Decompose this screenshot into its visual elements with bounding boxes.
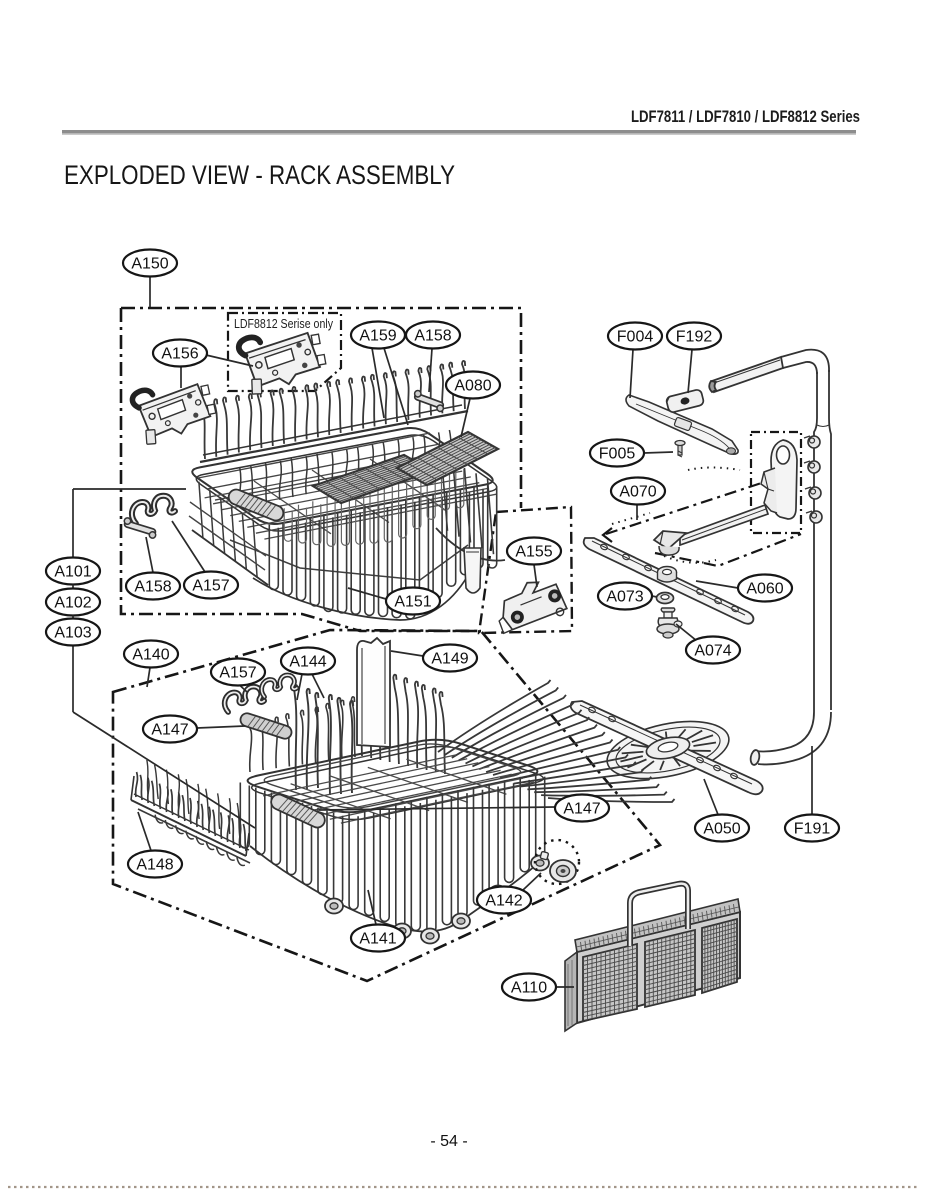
svg-text:A110: A110 <box>511 980 547 997</box>
svg-text:LDF7811 / LDF7810 / LDF8812 Se: LDF7811 / LDF7810 / LDF8812 Series <box>631 108 860 126</box>
svg-text:A151: A151 <box>394 594 431 611</box>
svg-text:A074: A074 <box>694 643 731 660</box>
svg-text:A158: A158 <box>414 328 451 345</box>
svg-text:A073: A073 <box>606 589 643 606</box>
svg-text:F191: F191 <box>794 821 831 838</box>
svg-text:- 54 -: - 54 - <box>430 1133 467 1150</box>
svg-text:A070: A070 <box>619 484 656 501</box>
svg-text:A150: A150 <box>131 256 168 273</box>
svg-text:A144: A144 <box>289 654 326 671</box>
svg-text:A102: A102 <box>54 595 91 612</box>
svg-text:A141: A141 <box>359 931 396 948</box>
svg-text:A155: A155 <box>515 544 552 561</box>
svg-text:A157: A157 <box>192 578 229 595</box>
svg-text:LDF8812 Serise only: LDF8812 Serise only <box>234 316 333 331</box>
svg-text:A157: A157 <box>219 665 256 682</box>
svg-text:A158: A158 <box>134 579 171 596</box>
svg-text:F005: F005 <box>599 446 636 463</box>
svg-text:A142: A142 <box>485 893 522 910</box>
svg-text:A159: A159 <box>359 328 396 345</box>
svg-text:A156: A156 <box>161 346 198 363</box>
svg-text:A101: A101 <box>54 564 91 581</box>
svg-text:A140: A140 <box>132 647 169 664</box>
svg-text:A147: A147 <box>563 801 600 818</box>
svg-text:A149: A149 <box>431 651 468 668</box>
svg-text:A080: A080 <box>454 378 491 395</box>
svg-text:EXPLODED VIEW - RACK ASSEMBLY: EXPLODED VIEW - RACK ASSEMBLY <box>64 160 455 190</box>
svg-text:A147: A147 <box>151 722 188 739</box>
svg-text:A103: A103 <box>54 625 91 642</box>
svg-text:A060: A060 <box>746 581 783 598</box>
svg-text:F192: F192 <box>676 329 713 346</box>
svg-text:A148: A148 <box>136 857 173 874</box>
svg-text:F004: F004 <box>617 329 654 346</box>
svg-text:A050: A050 <box>703 821 740 838</box>
